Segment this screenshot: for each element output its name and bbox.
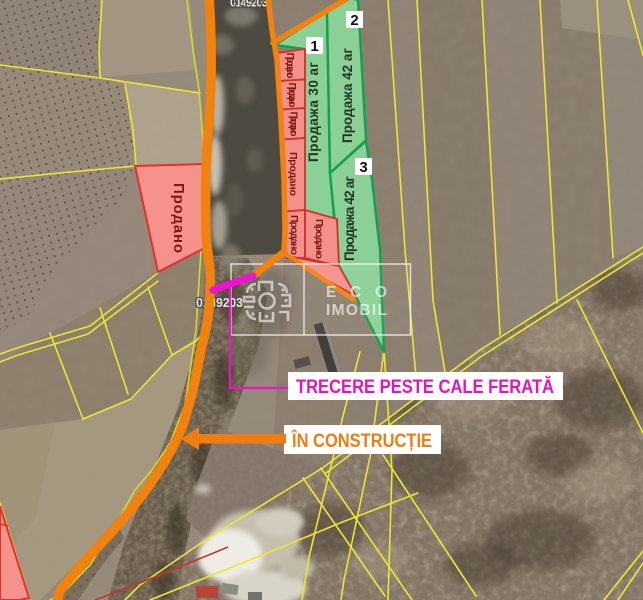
svg-text:2: 2 xyxy=(350,12,358,29)
svg-text:Продано: Продано xyxy=(288,215,300,255)
svg-text:Продано: Продано xyxy=(284,53,296,79)
svg-text:Продажа 42 аг: Продажа 42 аг xyxy=(342,176,357,261)
svg-text:Продажа 30 аг: Продажа 30 аг xyxy=(306,62,321,162)
svg-text:Продано: Продано xyxy=(170,183,187,253)
svg-text:0149203: 0149203 xyxy=(230,0,268,10)
svg-text:3: 3 xyxy=(359,159,367,176)
svg-text:Продано: Продано xyxy=(313,219,325,259)
svg-text:Продажа 42 аг: Продажа 42 аг xyxy=(340,48,355,143)
svg-text:ÎN CONSTRUCȚIE: ÎN CONSTRUCȚIE xyxy=(291,430,432,452)
svg-text:Продано: Продано xyxy=(288,112,300,137)
svg-text:Продано: Продано xyxy=(286,83,298,108)
svg-text:1: 1 xyxy=(310,38,318,55)
svg-text:TRECERE PESTE CALE FERATĂ: TRECERE PESTE CALE FERATĂ xyxy=(296,376,554,398)
svg-text:Продано: Продано xyxy=(287,152,299,196)
svg-text:IMOBIL: IMOBIL xyxy=(326,302,387,319)
svg-text:ECO: ECO xyxy=(326,284,387,301)
